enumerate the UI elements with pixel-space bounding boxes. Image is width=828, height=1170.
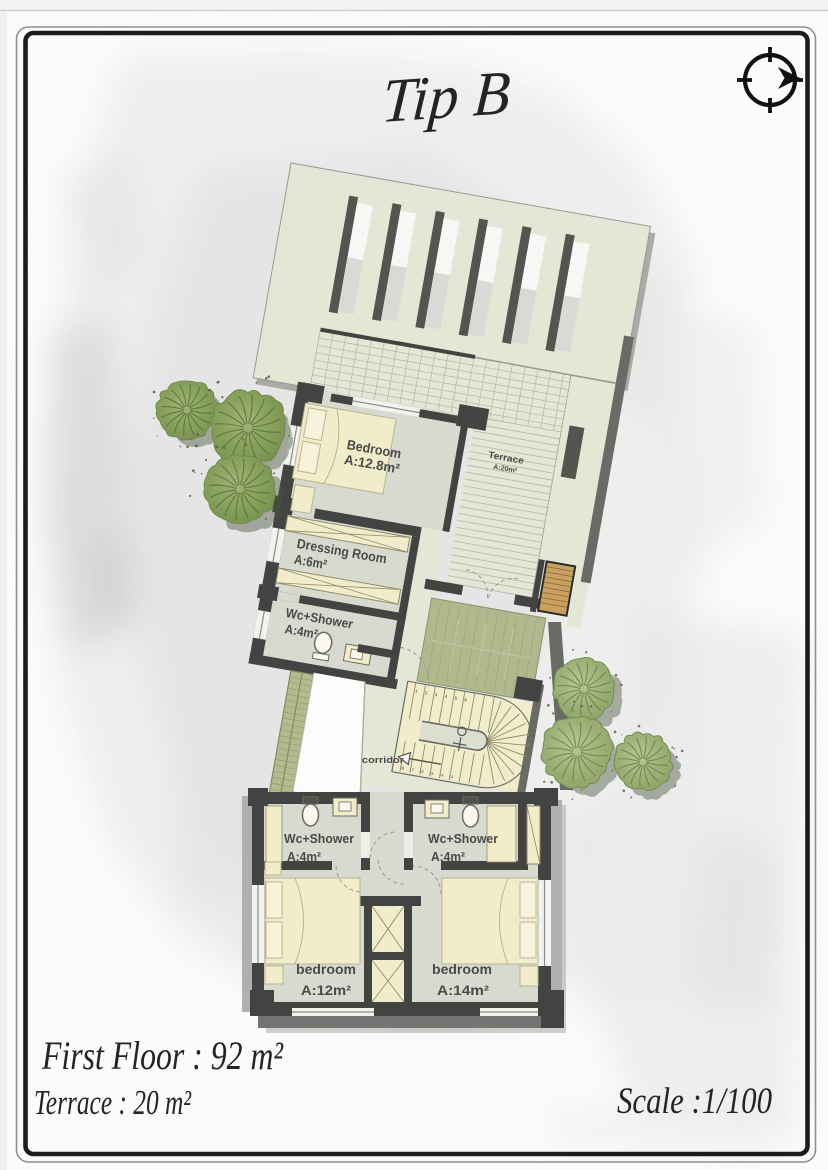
- svg-text:bedroom: bedroom: [432, 962, 492, 977]
- svg-text:Wc+Shower: Wc+Shower: [284, 831, 354, 846]
- svg-text:Tip B: Tip B: [380, 58, 513, 136]
- svg-text:Scale :1/100: Scale :1/100: [617, 1081, 772, 1122]
- svg-text:A:4m²: A:4m²: [287, 849, 322, 864]
- svg-text:First Floor : 92 m²: First Floor : 92 m²: [41, 1033, 284, 1078]
- svg-text:Terrace : 20 m²: Terrace : 20 m²: [34, 1083, 191, 1122]
- svg-text:A:4m²: A:4m²: [431, 849, 466, 864]
- svg-text:A:12m²: A:12m²: [301, 983, 352, 998]
- svg-text:A:14m²: A:14m²: [437, 983, 490, 998]
- svg-text:Wc+Shower: Wc+Shower: [428, 831, 498, 846]
- svg-text:corridor: corridor: [362, 755, 404, 766]
- svg-text:bedroom: bedroom: [296, 962, 356, 977]
